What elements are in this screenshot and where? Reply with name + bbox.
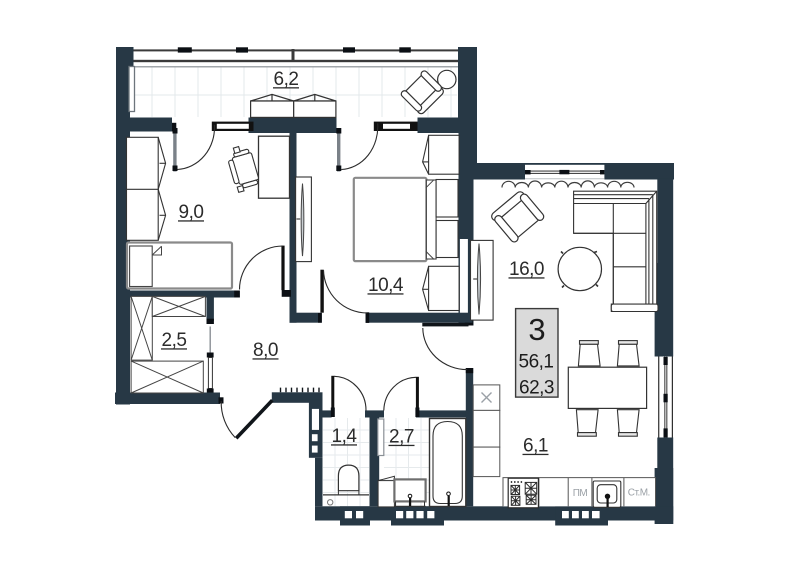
svg-text:6,2: 6,2 (274, 69, 299, 90)
svg-text:2,5: 2,5 (162, 330, 187, 351)
svg-text:8,0: 8,0 (253, 340, 278, 361)
svg-text:10,4: 10,4 (368, 275, 404, 296)
svg-text:2,7: 2,7 (389, 427, 414, 448)
svg-text:6,1: 6,1 (523, 436, 548, 457)
svg-text:3: 3 (528, 312, 545, 347)
svg-text:Ст.М.: Ст.М. (628, 488, 650, 499)
svg-text:9,0: 9,0 (179, 202, 204, 223)
svg-text:62,3: 62,3 (519, 378, 554, 399)
svg-text:56,1: 56,1 (519, 352, 554, 373)
svg-text:ПМ: ПМ (573, 488, 588, 499)
svg-text:16,0: 16,0 (509, 259, 544, 280)
svg-text:1,4: 1,4 (332, 426, 358, 447)
